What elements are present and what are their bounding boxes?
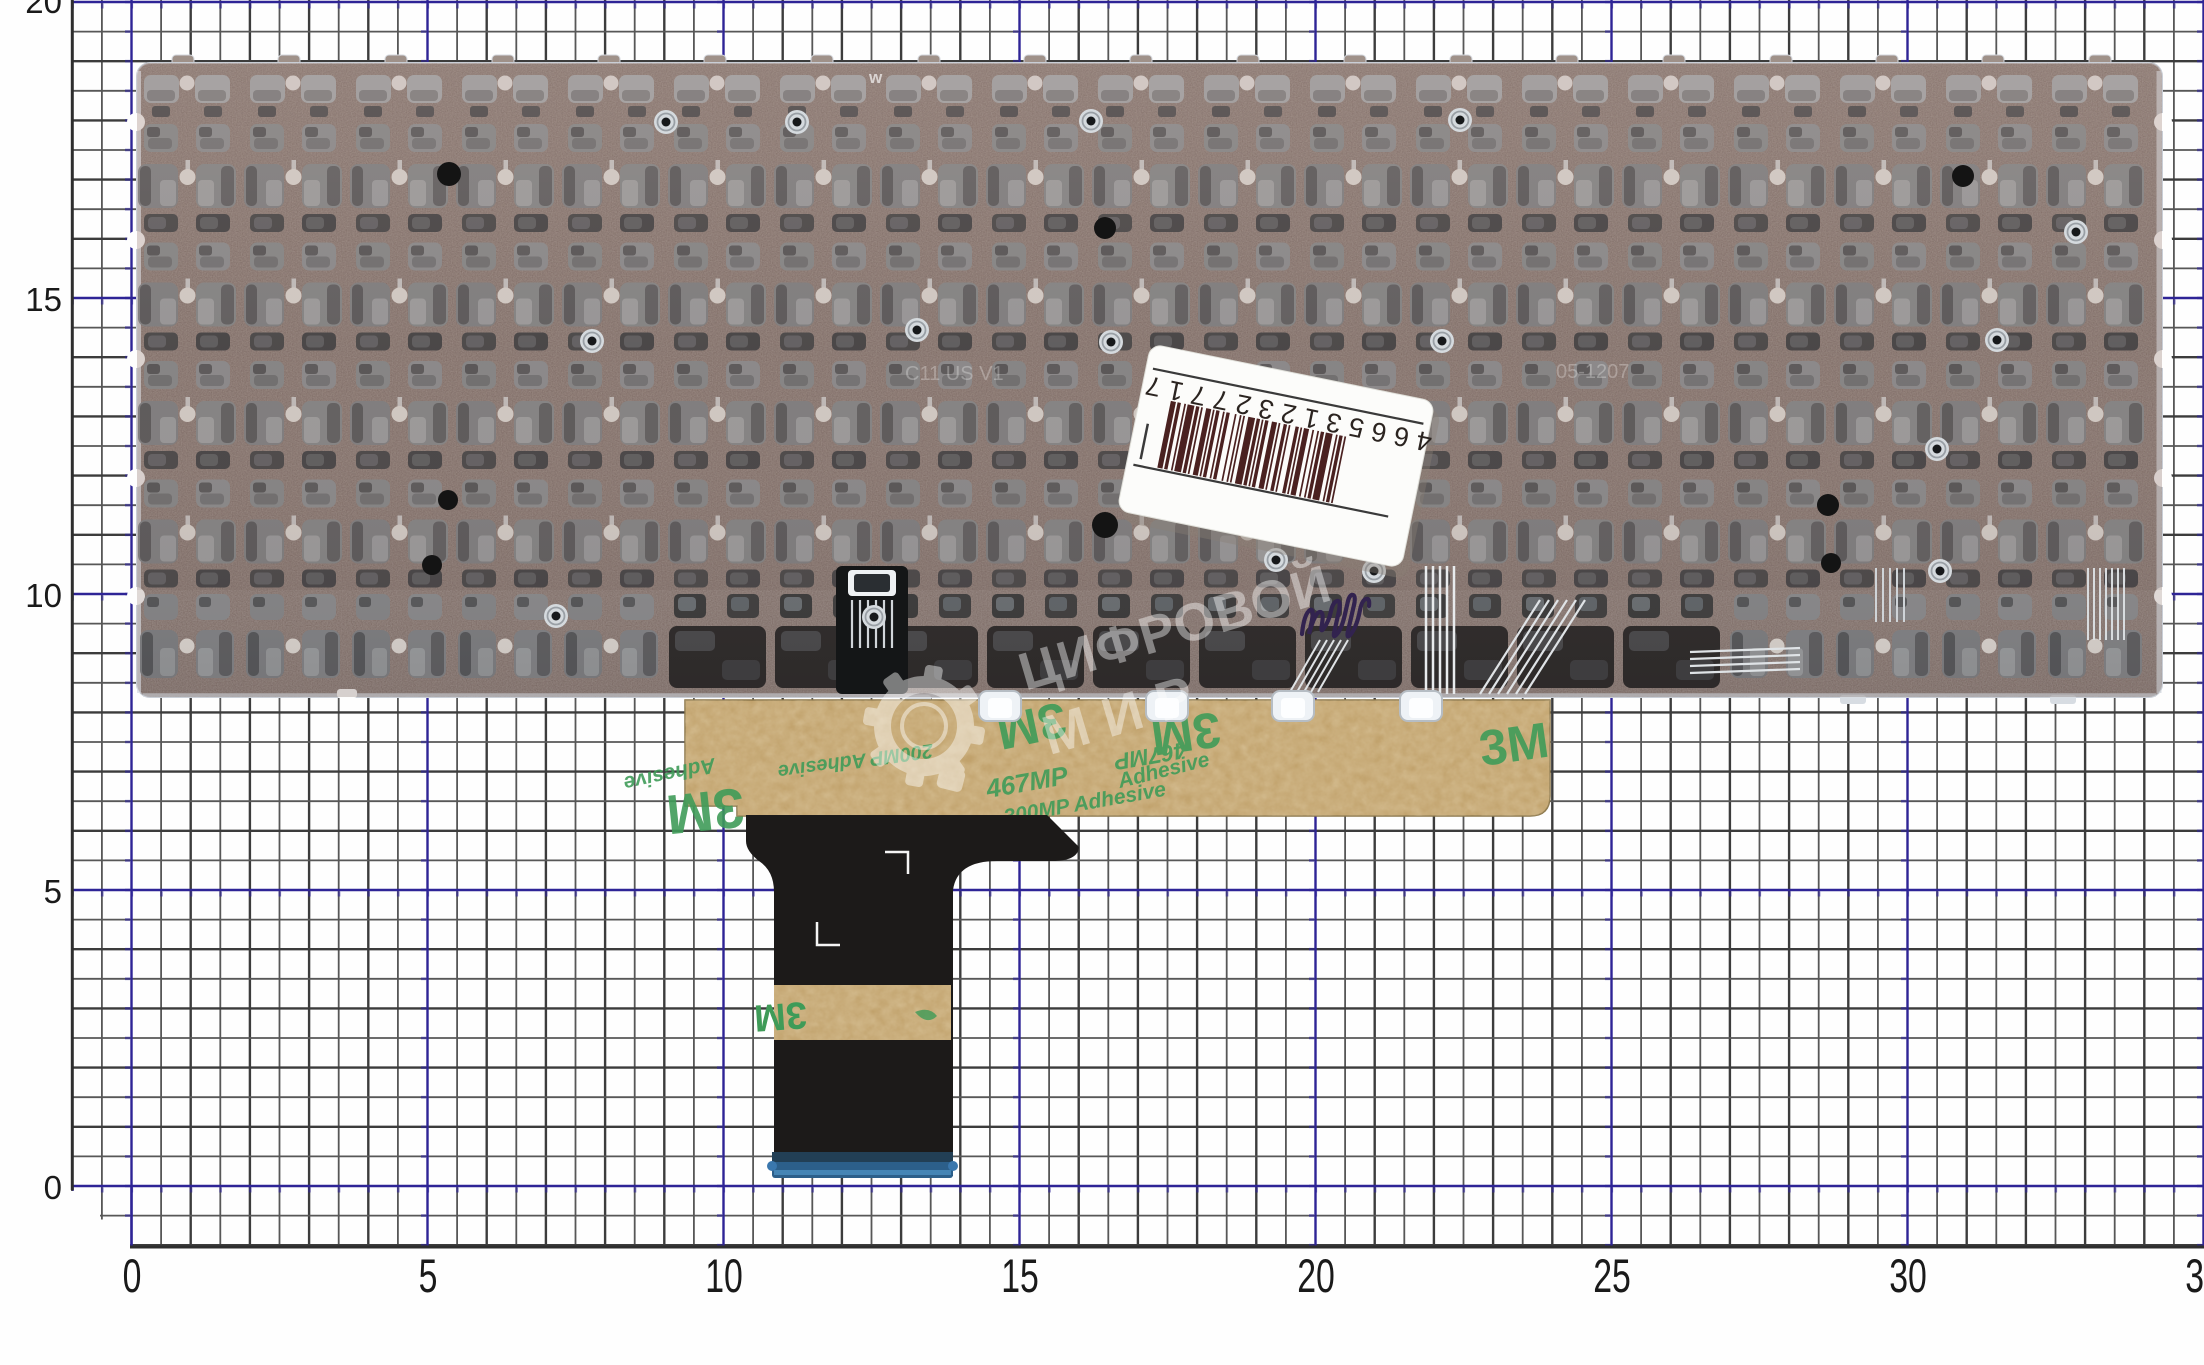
svg-text:05-1207: 05-1207: [1556, 361, 1629, 383]
svg-text:0: 0: [123, 1250, 142, 1303]
svg-text:15: 15: [25, 281, 62, 318]
svg-text:C11 US V1: C11 US V1: [905, 363, 1004, 385]
svg-text:5: 5: [419, 1250, 438, 1303]
svg-text:3M: 3M: [1476, 712, 1553, 777]
svg-text:w: w: [868, 68, 883, 87]
svg-text:5: 5: [44, 873, 62, 910]
svg-text:3M: 3M: [663, 776, 747, 847]
svg-text:35: 35: [2185, 1250, 2204, 1303]
svg-text:0: 0: [44, 1169, 62, 1206]
svg-text:10: 10: [705, 1250, 743, 1303]
svg-text:10: 10: [25, 577, 62, 614]
svg-text:20: 20: [1297, 1250, 1335, 1303]
svg-text:15: 15: [1001, 1250, 1039, 1303]
svg-text:30: 30: [1889, 1250, 1927, 1303]
svg-text:3M: 3M: [753, 993, 809, 1039]
svg-text:25: 25: [1593, 1250, 1631, 1303]
svg-text:20: 20: [25, 0, 62, 20]
